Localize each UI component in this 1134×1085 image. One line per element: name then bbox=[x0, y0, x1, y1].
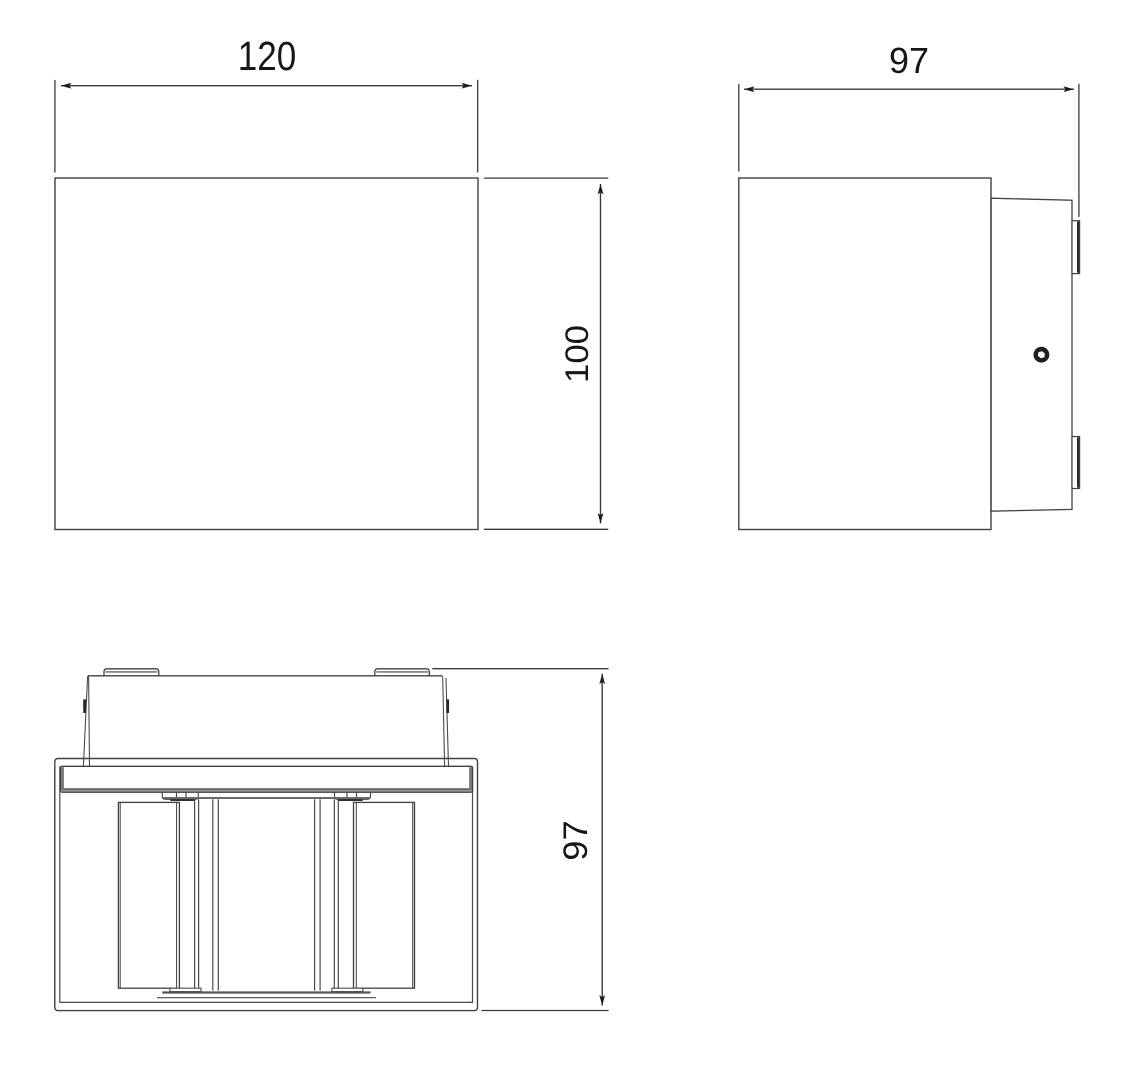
svg-text:100: 100 bbox=[559, 325, 595, 383]
svg-text:97: 97 bbox=[889, 40, 929, 81]
svg-text:120: 120 bbox=[238, 33, 297, 79]
svg-text:97: 97 bbox=[557, 820, 595, 861]
